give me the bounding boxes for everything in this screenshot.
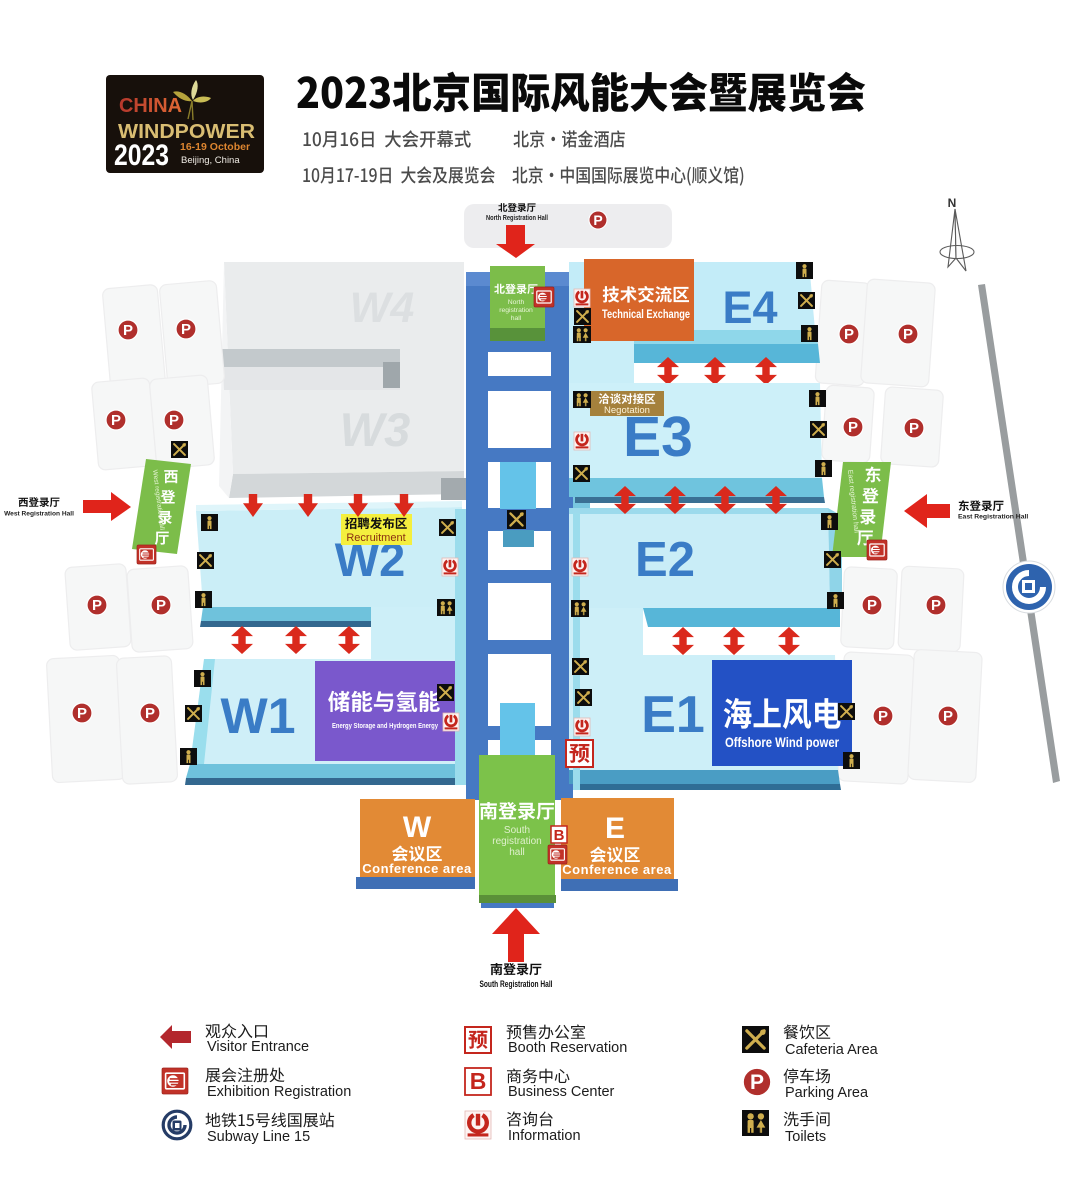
svg-text:Exhibition Registration: Exhibition Registration [207, 1084, 351, 1100]
svg-text:South Registration Hall: South Registration Hall [480, 979, 553, 989]
svg-text:P: P [867, 597, 877, 614]
svg-text:Business Center: Business Center [508, 1084, 615, 1100]
svg-text:W: W [403, 811, 432, 844]
svg-text:P: P [848, 419, 858, 436]
svg-text:E2: E2 [635, 533, 695, 587]
svg-text:P: P [903, 326, 913, 343]
svg-text:P: P [750, 1071, 764, 1094]
svg-text:P: P [943, 708, 953, 725]
svg-text:P: P [111, 412, 121, 429]
svg-text:registration: registration [492, 836, 541, 847]
svg-text:Energy Storage and Hydrogen En: Energy Storage and Hydrogen Energy [332, 721, 439, 730]
svg-text:Toilets: Toilets [785, 1129, 826, 1145]
svg-text:Booth Reservation: Booth Reservation [508, 1040, 627, 1056]
svg-text:P: P [123, 322, 133, 339]
svg-text:West Registration Hall: West Registration Hall [4, 511, 74, 518]
svg-text:W4: W4 [350, 284, 415, 332]
svg-text:Beijing, China: Beijing, China [181, 155, 240, 166]
svg-text:Negotation: Negotation [604, 405, 650, 416]
svg-text:Visitor Entrance: Visitor Entrance [207, 1039, 309, 1055]
svg-text:Recruitment: Recruitment [346, 532, 405, 544]
svg-text:P: P [593, 212, 602, 228]
svg-text:Offshore Wind power: Offshore Wind power [725, 734, 839, 750]
svg-text:N: N [948, 196, 957, 210]
svg-text:2023: 2023 [114, 139, 169, 172]
svg-text:hall: hall [509, 847, 525, 858]
svg-text:E4: E4 [722, 282, 777, 333]
svg-text:P: P [145, 705, 155, 722]
svg-text:P: P [156, 597, 166, 614]
svg-text:B: B [554, 827, 565, 844]
svg-text:16-19 October: 16-19 October [180, 141, 250, 153]
svg-text:W3: W3 [340, 403, 411, 456]
svg-text:North Registration Hall: North Registration Hall [486, 215, 548, 222]
svg-text:W1: W1 [221, 688, 296, 744]
svg-text:E: E [605, 812, 625, 845]
svg-text:Technical Exchange: Technical Exchange [602, 309, 690, 321]
svg-text:South: South [504, 825, 530, 836]
svg-text:Conference area: Conference area [562, 862, 672, 877]
svg-text:P: P [181, 321, 191, 338]
svg-text:P: P [878, 708, 888, 725]
svg-text:P: P [92, 597, 102, 614]
svg-text:P: P [909, 420, 919, 437]
svg-text:Conference area: Conference area [362, 861, 472, 876]
svg-text:P: P [931, 597, 941, 614]
svg-text:B: B [470, 1068, 487, 1094]
svg-text:P: P [77, 705, 87, 722]
svg-text:East Registration Hall: East Registration Hall [958, 514, 1028, 521]
svg-text:Subway Line 15: Subway Line 15 [207, 1129, 310, 1145]
svg-text:hall: hall [511, 315, 522, 322]
svg-text:Parking Area: Parking Area [785, 1085, 869, 1101]
svg-text:CHINA: CHINA [119, 95, 182, 117]
svg-text:registration: registration [499, 307, 533, 314]
svg-text:E1: E1 [641, 686, 705, 744]
svg-text:North: North [508, 299, 525, 306]
svg-text:P: P [844, 326, 854, 343]
svg-text:Cafeteria Area: Cafeteria Area [785, 1042, 879, 1058]
svg-text:P: P [169, 412, 179, 429]
svg-text:Information: Information [508, 1128, 581, 1144]
